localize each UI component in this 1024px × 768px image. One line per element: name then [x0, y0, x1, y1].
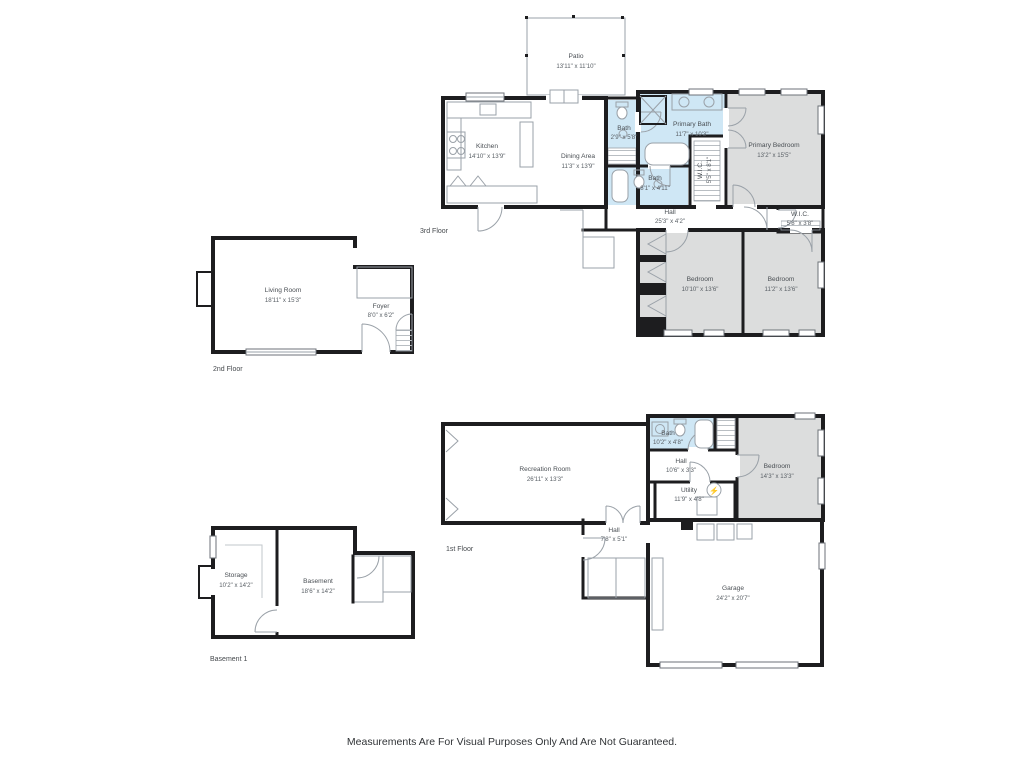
recreation-dims: 26'11" x 13'3" [527, 476, 563, 483]
closet-wall-1 [639, 255, 666, 262]
primary-bedroom-dims: 13'2" x 15'5" [757, 152, 790, 159]
hall-3rd-label: Hall [664, 209, 676, 216]
dining-label: Dining Area [561, 153, 595, 160]
foyer-closet [396, 330, 412, 351]
closet-wall-3 [639, 317, 666, 333]
floor-3rd: Patio 13'11" x 11'10" [420, 15, 824, 336]
storage-label: Storage [224, 572, 247, 579]
stairs-basement [353, 556, 411, 602]
door-hall-swing [744, 207, 767, 230]
storage-bumpout [199, 566, 213, 598]
living-room-walls [213, 238, 412, 352]
foyer-label: Foyer [373, 303, 391, 310]
kitchen-dims: 14'10" x 13'9" [469, 153, 506, 160]
bathtub-vertical [612, 170, 628, 202]
garage-window [819, 543, 825, 569]
foyer-dims: 8'0" x 6'2" [368, 312, 395, 319]
door-storage [255, 610, 277, 632]
primary-bath-dims: 11'7" x 10'3" [676, 131, 709, 138]
gap-bedroom-a [666, 227, 688, 233]
floor-label-1st: 1st Floor [446, 546, 474, 553]
hall-3rd-dims: 25'3" x 4'2" [655, 218, 685, 225]
utility-dims: 11'9" x 4'8" [674, 496, 704, 503]
gap-front-door [362, 349, 390, 355]
recreation-walls [443, 424, 648, 523]
garage-workbench [652, 558, 663, 630]
basement-dims: 18'6" x 14'2" [301, 588, 334, 595]
wic-a-dims: 5'5" x 8'1" [706, 157, 713, 184]
window-well-mark [446, 430, 458, 452]
bathtub [645, 143, 689, 165]
foyer-door [396, 314, 412, 330]
garage-door-2 [736, 662, 798, 668]
garage-storage-boxes [652, 524, 752, 630]
garage-post [681, 520, 693, 530]
hall-a-label: Hall [675, 458, 687, 465]
stairs-1st [588, 558, 645, 598]
recreation-label: Recreation Room [519, 466, 571, 473]
bedroom-window-top [795, 413, 815, 419]
gap-storage-bumpout [211, 569, 216, 595]
bedroom-window-right [818, 478, 824, 504]
floor-basement: Storage 10'2" x 14'2" Basement 18'6" x 1… [199, 528, 413, 663]
garage-walls [648, 520, 822, 665]
gap-bedroom-1st [734, 455, 740, 477]
hall-a-dims: 10'6" x 3'3" [666, 467, 696, 474]
floor-label-2nd: 2nd Floor [213, 366, 243, 373]
garage-label: Garage [722, 585, 744, 592]
linen-closet-1st [717, 418, 735, 450]
gap-dining-stairs [478, 204, 504, 210]
living-room-dims: 18'11" x 15'3" [265, 297, 301, 304]
bay-window-mark [470, 176, 486, 186]
gap-wic-b [775, 210, 781, 228]
stair-landing [383, 556, 411, 592]
room-patio: Patio 13'11" x 11'10" [525, 15, 625, 95]
door-dining-stairs [478, 207, 502, 231]
floorplan-page: Patio 13'11" x 11'10" [0, 0, 1024, 768]
wic-a-label: W.I.C. [697, 161, 704, 179]
hall-b-dims: 7'8" x 5'1" [601, 536, 628, 543]
stove-burner [450, 136, 457, 143]
basement-window [210, 536, 216, 558]
gap-stairs-2nd [352, 248, 358, 265]
living-room-label: Living Room [265, 287, 302, 294]
toilet [675, 424, 685, 436]
patio-dims: 13'11" x 11'10" [556, 63, 595, 70]
stairs-2nd [357, 267, 412, 298]
floor-1st: ⚡ Recreation Room 26'11" x 13'3" Bath 10… [443, 413, 825, 669]
basement-label: Basement [303, 578, 333, 585]
gap-wic-a [696, 203, 716, 210]
bath-b-label: Bath [648, 175, 662, 182]
bedroom-b-dims: 11'2" x 13'6" [765, 286, 798, 293]
patio-label: Patio [568, 53, 583, 60]
bedroom-1st-dims: 14'3" x 13'3" [760, 473, 793, 480]
gap-utility [690, 479, 710, 485]
bathtub [695, 420, 713, 448]
wic-b-dims: 5'8" x 3'8" [787, 220, 814, 227]
bedroom-a-dims: 10'10" x 13'6" [682, 286, 719, 293]
storage-dims: 10'2" x 14'2" [219, 582, 252, 589]
electrical-panel-bolt: ⚡ [709, 486, 719, 496]
disclaimer-text: Measurements Are For Visual Purposes Onl… [347, 736, 677, 748]
hall-b-label: Hall [608, 527, 620, 534]
gap-primary-bedroom-doors [723, 108, 729, 148]
primary-bedroom-label: Primary Bedroom [748, 142, 800, 149]
kitchen-label: Kitchen [476, 143, 498, 150]
kitchen-sink [480, 104, 496, 115]
bedroom-1st-label: Bedroom [764, 463, 791, 470]
bath-wc-dims: 2'9" x 5'8" [611, 134, 638, 141]
gap-garage-hall [645, 525, 651, 543]
stove-burner [450, 148, 457, 155]
bath-b-dims: 8'1" x 4'11" [640, 185, 670, 192]
floor-label-basement: Basement 1 [210, 656, 247, 663]
primary-bath-label: Primary Bath [673, 121, 711, 128]
floor-2nd: Living Room 18'11" x 15'3" Foyer 8'0" x … [197, 238, 412, 373]
window-well-mark [446, 498, 458, 520]
bedroom-a-label: Bedroom [687, 276, 714, 283]
room-primary-bedroom [728, 94, 821, 205]
toilet [617, 107, 627, 119]
bay-window-mark [450, 176, 466, 186]
utility-label: Utility [681, 487, 698, 494]
front-door [362, 324, 390, 352]
bath-wc-label: Bath [617, 125, 631, 132]
garage-dims: 24'2" x 20'7" [716, 595, 749, 602]
door-basement-stairs [357, 556, 379, 578]
bath-1st-dims: 10'2" x 4'8" [653, 439, 683, 446]
room-primary-bath [640, 94, 726, 136]
bath-1st-label: Bath [661, 430, 675, 437]
bedroom-b-label: Bedroom [768, 276, 795, 283]
linen-shelf [608, 148, 636, 164]
garage-door-1 [660, 662, 722, 668]
dining-dims: 11'3" x 13'9" [562, 163, 595, 170]
wic-b-label: W.I.C. [791, 211, 809, 218]
closet-wall-2 [639, 283, 666, 295]
bedroom-window-right [818, 430, 824, 456]
floorplan-canvas: Patio 13'11" x 11'10" [0, 0, 1024, 768]
floor-label-3rd: 3rd Floor [420, 228, 449, 235]
